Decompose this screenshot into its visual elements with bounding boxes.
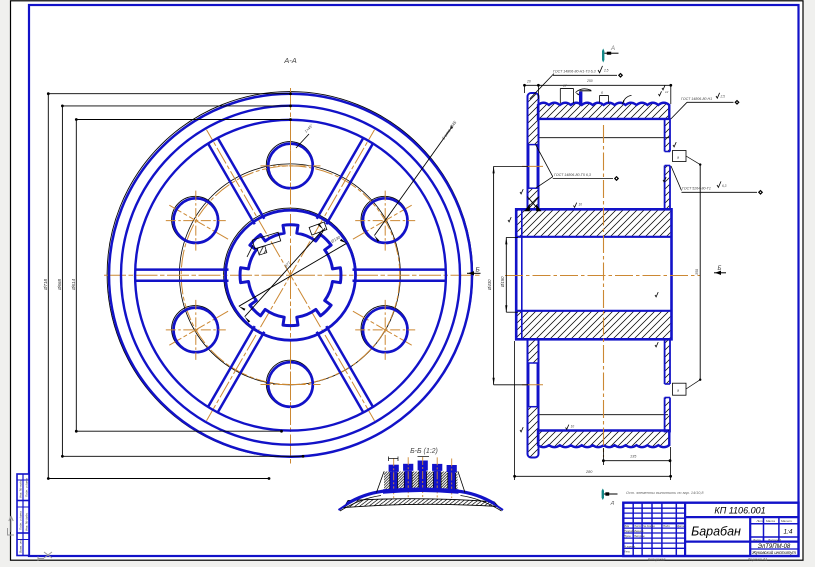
svg-text:Ø150: Ø150 — [500, 276, 505, 288]
svg-text:А: А — [610, 46, 615, 52]
svg-text:Утв.: Утв. — [624, 550, 631, 554]
svg-text:12: 12 — [665, 90, 669, 94]
svg-text:№ докум.: № докум. — [643, 524, 656, 528]
svg-text:Листов 1: Листов 1 — [767, 538, 782, 542]
svg-text:Ост. элементы выполнить по вар: Ост. элементы выполнить по вар. 14/10,8 — [626, 491, 704, 495]
svg-text:Жуковский институт: Жуковский институт — [751, 550, 796, 555]
svg-text:17: 17 — [563, 84, 567, 88]
svg-text:Дата: Дата — [676, 524, 685, 528]
svg-text:Пров.: Пров. — [624, 534, 632, 538]
svg-text:Масшт.: Масшт. — [781, 519, 793, 523]
svg-text:1:4: 1:4 — [783, 529, 792, 536]
svg-text:280: 280 — [585, 470, 593, 474]
svg-text:Изм: Изм — [624, 524, 629, 528]
svg-text:а: а — [677, 156, 679, 160]
svg-text:Инв. № подл.: Инв. № подл. — [19, 479, 23, 498]
svg-text:а: а — [677, 389, 679, 393]
svg-text:Лит.: Лит. — [756, 519, 764, 523]
svg-text:Ø614: Ø614 — [71, 278, 76, 291]
svg-text:Иванов: Иванов — [634, 529, 644, 533]
svg-text:А-А: А-А — [283, 56, 297, 65]
svg-text:Копировал: Копировал — [648, 558, 665, 562]
svg-text:Ø668: Ø668 — [57, 278, 62, 291]
svg-text:Ø430: Ø430 — [487, 279, 492, 291]
svg-text:135: 135 — [630, 455, 637, 459]
svg-text:Подп. и дата: Подп. и дата — [25, 478, 29, 497]
svg-text:Лист: Лист — [633, 524, 642, 528]
svg-text:2,5: 2,5 — [720, 95, 726, 99]
svg-text:ГОСТ 5264-80-Т1: ГОСТ 5264-80-Т1 — [682, 187, 711, 191]
svg-text:Лист: Лист — [752, 538, 761, 542]
svg-text:Взам. инв.: Взам. инв. — [19, 538, 23, 553]
svg-text:Барабан: Барабан — [691, 525, 741, 539]
svg-text:Петров: Петров — [634, 534, 645, 538]
svg-text:ГОСТ 14806-80-Т5 6,3: ГОСТ 14806-80-Т5 6,3 — [554, 173, 591, 177]
svg-text:Б-Б (1:2): Б-Б (1:2) — [410, 448, 438, 455]
svg-text:Б: Б — [476, 267, 480, 274]
svg-text:10: 10 — [571, 425, 575, 429]
svg-text:10: 10 — [579, 203, 583, 207]
svg-text:КП 1106.001: КП 1106.001 — [714, 506, 765, 516]
svg-text:6,3: 6,3 — [722, 184, 727, 188]
svg-text:Подп. и дата: Подп. и дата — [19, 511, 23, 530]
svg-text:Н.контр.: Н.контр. — [624, 545, 636, 549]
svg-text:350: 350 — [695, 269, 699, 275]
svg-text:Формат А1: Формат А1 — [748, 558, 767, 562]
svg-text:250: 250 — [586, 79, 593, 83]
svg-text:Ø718: Ø718 — [43, 278, 48, 291]
svg-text:ГОСТ 14806-80 Н1: ГОСТ 14806-80 Н1 — [681, 97, 712, 101]
svg-text:Разраб.: Разраб. — [624, 529, 634, 533]
svg-text:Масса: Масса — [766, 519, 775, 523]
svg-text:Подп.: Подп. — [663, 524, 671, 528]
svg-text:2,5: 2,5 — [603, 69, 609, 73]
svg-text:б: б — [601, 91, 603, 95]
svg-text:20: 20 — [526, 80, 531, 84]
svg-text:Инв. № дубл.: Инв. № дубл. — [25, 512, 29, 531]
svg-text:ГОСТ 14806-80-Н1-Т3 6,3: ГОСТ 14806-80-Н1-Т3 6,3 — [553, 70, 596, 74]
